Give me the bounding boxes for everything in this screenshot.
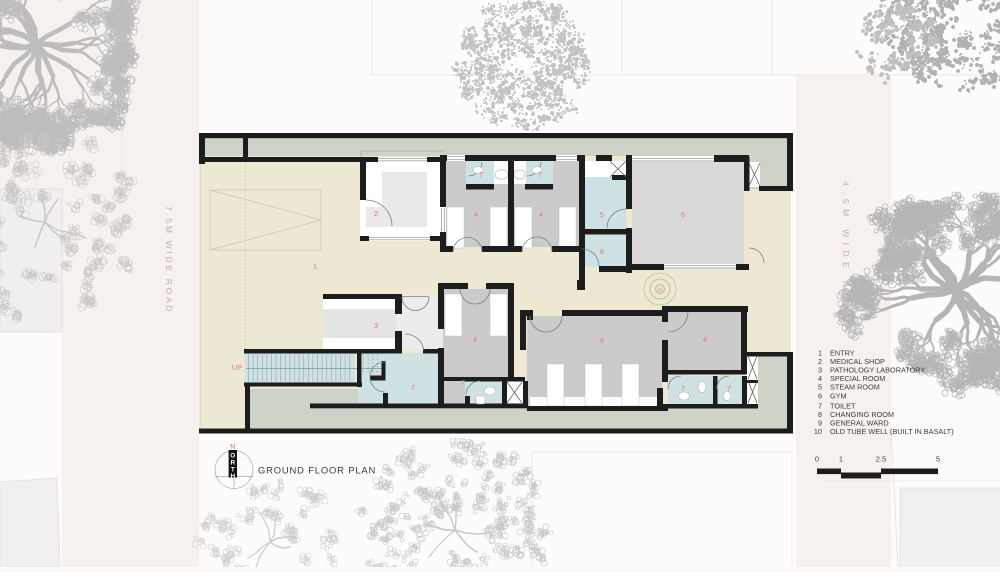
svg-text:GYM: GYM bbox=[830, 391, 847, 400]
svg-text:4: 4 bbox=[473, 335, 477, 344]
svg-text:9: 9 bbox=[600, 336, 604, 345]
svg-text:7: 7 bbox=[681, 384, 685, 393]
svg-text:1: 1 bbox=[313, 262, 317, 271]
svg-text:5: 5 bbox=[936, 455, 940, 464]
svg-text:7: 7 bbox=[461, 378, 465, 387]
svg-text:1: 1 bbox=[839, 455, 843, 464]
svg-text:8: 8 bbox=[600, 247, 604, 256]
svg-text:5: 5 bbox=[600, 210, 604, 219]
svg-text:7.5M WIDE ROAD: 7.5M WIDE ROAD bbox=[164, 206, 174, 314]
svg-text:6: 6 bbox=[681, 210, 685, 219]
svg-text:4: 4 bbox=[474, 210, 478, 219]
svg-text:7: 7 bbox=[411, 383, 415, 392]
svg-text:10: 10 bbox=[657, 288, 663, 293]
svg-text:2: 2 bbox=[374, 209, 378, 218]
svg-text:7: 7 bbox=[538, 170, 542, 179]
svg-text:0: 0 bbox=[815, 455, 819, 464]
svg-text:7: 7 bbox=[479, 170, 483, 179]
svg-text:UP: UP bbox=[232, 363, 242, 372]
svg-text:GROUND FLOOR PLAN: GROUND FLOOR PLAN bbox=[258, 465, 376, 476]
svg-text:OLD TUBE WELL (BUILT IN BASALT: OLD TUBE WELL (BUILT IN BASALT) bbox=[830, 427, 954, 436]
svg-text:4: 4 bbox=[703, 335, 707, 344]
svg-text:3: 3 bbox=[374, 321, 378, 330]
svg-text:N: N bbox=[230, 444, 235, 451]
svg-text:H: H bbox=[230, 473, 235, 480]
svg-text:4.5M WIDE ROAD: 4.5M WIDE ROAD bbox=[841, 181, 851, 327]
svg-text:6: 6 bbox=[818, 391, 822, 400]
svg-text:2.5: 2.5 bbox=[876, 455, 886, 464]
svg-text:4: 4 bbox=[539, 210, 543, 219]
svg-text:10: 10 bbox=[814, 427, 822, 436]
svg-text:7: 7 bbox=[727, 384, 731, 393]
